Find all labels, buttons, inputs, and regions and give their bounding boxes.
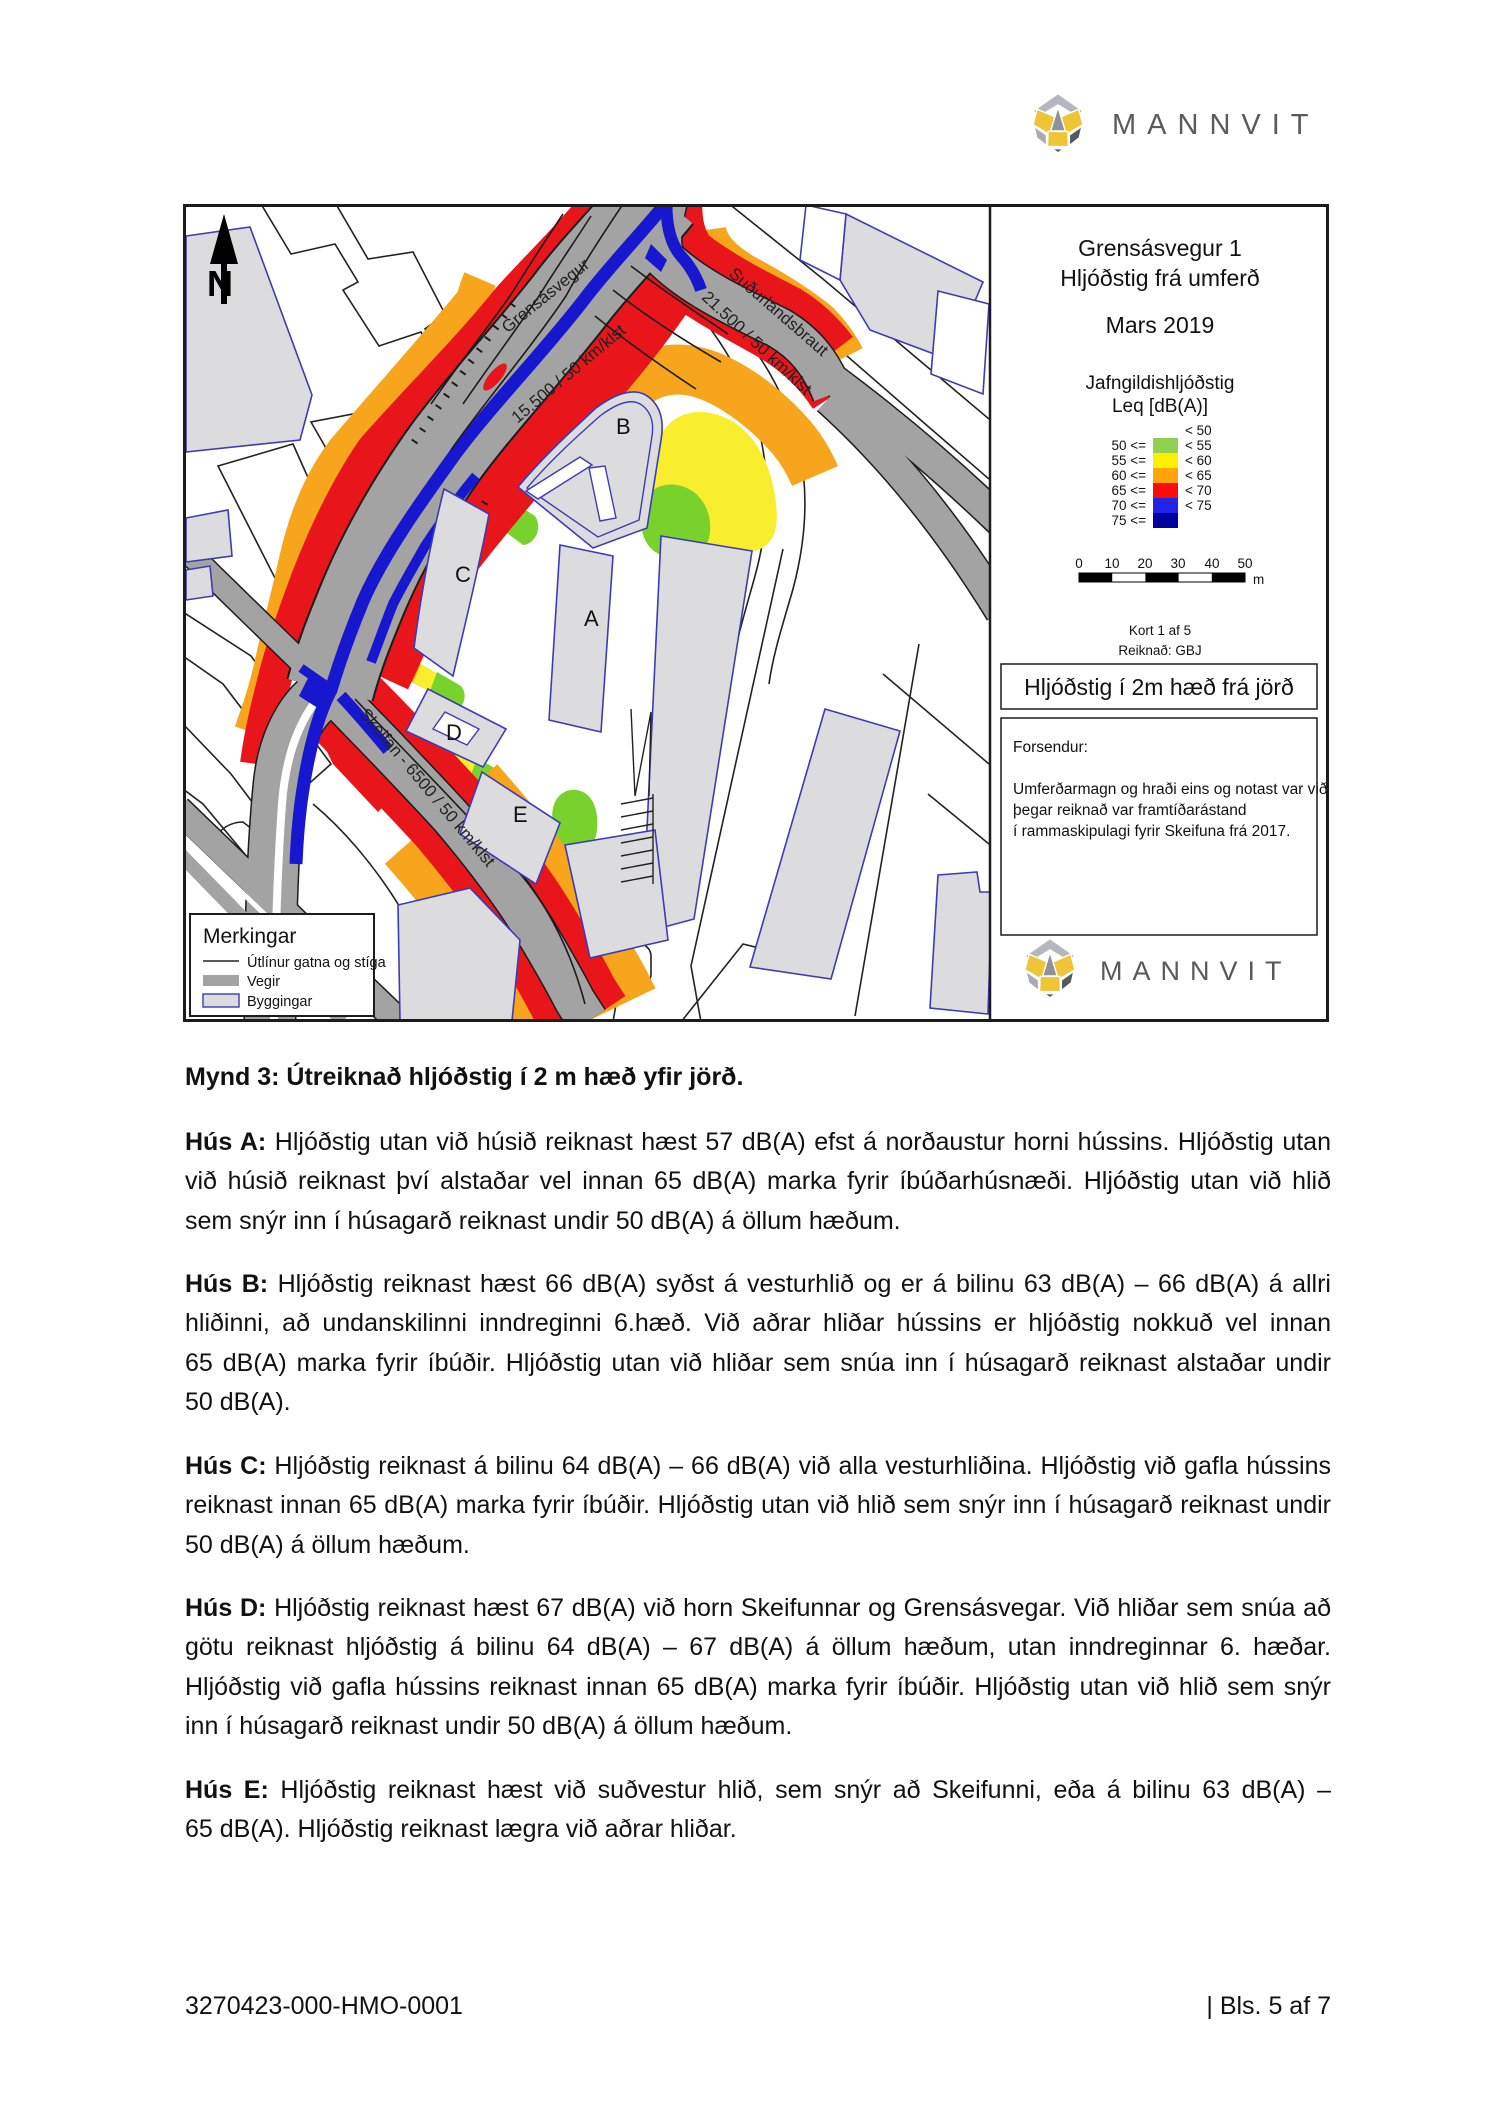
- svg-text:A: A: [584, 606, 599, 631]
- svg-text:< 65: < 65: [1185, 468, 1212, 483]
- svg-text:75 <=: 75 <=: [1111, 513, 1146, 528]
- svg-text:B: B: [616, 414, 631, 439]
- svg-text:< 55: < 55: [1185, 438, 1212, 453]
- svg-text:Kort 1 af 5: Kort 1 af 5: [1129, 623, 1191, 638]
- svg-text:Hljóðstig í 2m hæð frá jörð: Hljóðstig í 2m hæð frá jörð: [1024, 674, 1294, 700]
- svg-text:< 50: < 50: [1185, 423, 1212, 438]
- svg-text:E: E: [513, 802, 528, 827]
- svg-text:m: m: [1253, 572, 1264, 587]
- svg-text:50 <=: 50 <=: [1111, 438, 1146, 453]
- svg-text:Forsendur:: Forsendur:: [1013, 739, 1088, 756]
- svg-text:50: 50: [1237, 556, 1252, 571]
- svg-text:30: 30: [1170, 556, 1185, 571]
- svg-text:Vegir: Vegir: [247, 974, 280, 990]
- svg-text:Umferðarmagn og hraði eins og: Umferðarmagn og hraði eins og notast var…: [1013, 781, 1328, 798]
- svg-text:0: 0: [1075, 556, 1083, 571]
- svg-text:í rammaskipulagi fyrir Skeifun: í rammaskipulagi fyrir Skeifuna frá 2017…: [1013, 823, 1290, 840]
- svg-text:10: 10: [1104, 556, 1119, 571]
- svg-text:< 75: < 75: [1185, 498, 1212, 513]
- svg-text:60 <=: 60 <=: [1111, 468, 1146, 483]
- svg-text:C: C: [455, 562, 471, 587]
- svg-text:70 <=: 70 <=: [1111, 498, 1146, 513]
- svg-text:Reiknað: GBJ: Reiknað: GBJ: [1118, 643, 1201, 658]
- svg-text:Mars 2019: Mars 2019: [1106, 312, 1215, 338]
- svg-text:þegar reiknað var framtíðarást: þegar reiknað var framtíðarástand: [1013, 802, 1246, 819]
- svg-text:D: D: [446, 720, 462, 745]
- svg-text:Merkingar: Merkingar: [203, 925, 296, 948]
- svg-text:< 70: < 70: [1185, 483, 1212, 498]
- svg-text:Útlínur gatna og stíga: Útlínur gatna og stíga: [247, 954, 387, 971]
- svg-text:Jafngildishljóðstig: Jafngildishljóðstig: [1086, 373, 1235, 394]
- svg-text:N: N: [207, 263, 233, 304]
- svg-text:65 <=: 65 <=: [1111, 483, 1146, 498]
- svg-text:Hljóðstig frá umferð: Hljóðstig frá umferð: [1060, 265, 1259, 291]
- svg-text:MANNVIT: MANNVIT: [1100, 956, 1292, 986]
- svg-text:Grensásvegur 1: Grensásvegur 1: [1078, 235, 1242, 261]
- svg-text:MANNVIT: MANNVIT: [1112, 109, 1320, 141]
- svg-text:< 60: < 60: [1185, 453, 1212, 468]
- svg-text:55 <=: 55 <=: [1111, 453, 1146, 468]
- svg-text:40: 40: [1204, 556, 1219, 571]
- svg-text:Byggingar: Byggingar: [247, 994, 312, 1010]
- svg-text:20: 20: [1137, 556, 1152, 571]
- svg-text:Leq [dB(A)]: Leq [dB(A)]: [1112, 396, 1208, 417]
